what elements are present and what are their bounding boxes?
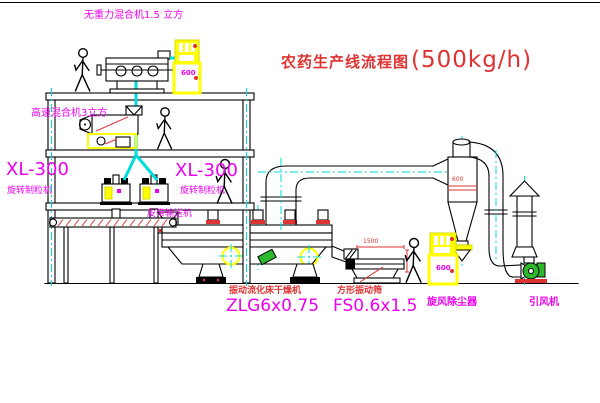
label-belt-conveyor: 皮带输送机 [147, 210, 192, 219]
panel-top-text: 600 [181, 70, 196, 77]
belt-conveyor [50, 218, 177, 283]
label-fan-name: 引风机 [529, 298, 559, 308]
label-dryer-name: 振动流化床干燥机 [229, 287, 301, 296]
worker-figure [74, 49, 90, 92]
label-high-speed-mixer: 高速混合机3立方 [31, 109, 107, 119]
title-chinese: 农药生产线流程图 [281, 51, 409, 72]
screen-length-dim: 1500 [363, 239, 378, 245]
control-cabinet-right [429, 233, 457, 284]
label-granulator-right-model: XL-300 [175, 162, 238, 180]
granulator-right [138, 175, 170, 205]
cyclone-diameter-dim: 600 [452, 177, 463, 183]
flow-diagram-page: 农药生产线流程图 (500kg/h) 无重力混合机1.5 立方 高速混合机3立方… [0, 0, 600, 403]
title-capacity: (500kg/h) [411, 47, 532, 73]
label-granulator-right-name: 旋转制粒机 [180, 187, 225, 196]
label-screen-name: 方形振动筛 [337, 287, 382, 296]
label-granulator-left-model: XL-300 [6, 161, 69, 179]
granulator-left [100, 175, 132, 205]
label-granulator-left-name: 旋转制粒机 [7, 187, 52, 196]
label-screen-model: FS0.6x1.5 [333, 298, 417, 315]
dryer-nozzles [206, 210, 330, 224]
label-cyclone-name: 旋风除尘器 [427, 298, 477, 308]
label-gravity-mixer: 无重力混合机1.5 立方 [84, 11, 183, 21]
panel-right-text: 600 [436, 265, 451, 272]
page-title: 农药生产线流程图 (500kg/h) [281, 47, 532, 73]
indicator-light-icon [450, 237, 454, 241]
control-cabinet-top [174, 40, 200, 93]
indicator-light-icon [193, 44, 197, 48]
worker-figure [157, 108, 172, 149]
worker-figure [405, 239, 421, 283]
stack-cap-icon [510, 181, 539, 196]
induced-draft-fan [515, 263, 547, 283]
discharge-chute [112, 209, 120, 218]
vibrating-screen [344, 245, 409, 283]
label-dryer-model: ZLG6x0.75 [226, 298, 319, 315]
